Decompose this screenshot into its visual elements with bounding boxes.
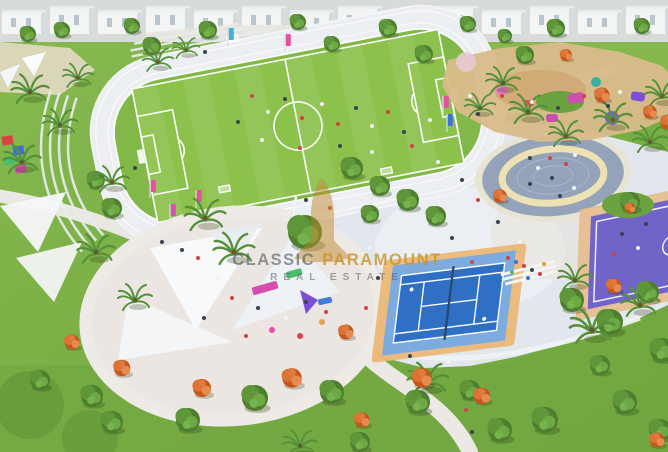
park-aerial-photo: CLASSICPARAMOUNT REAL ESTATE — [0, 0, 668, 452]
park-aerial-scene — [0, 0, 668, 452]
tennis-court — [371, 243, 526, 363]
